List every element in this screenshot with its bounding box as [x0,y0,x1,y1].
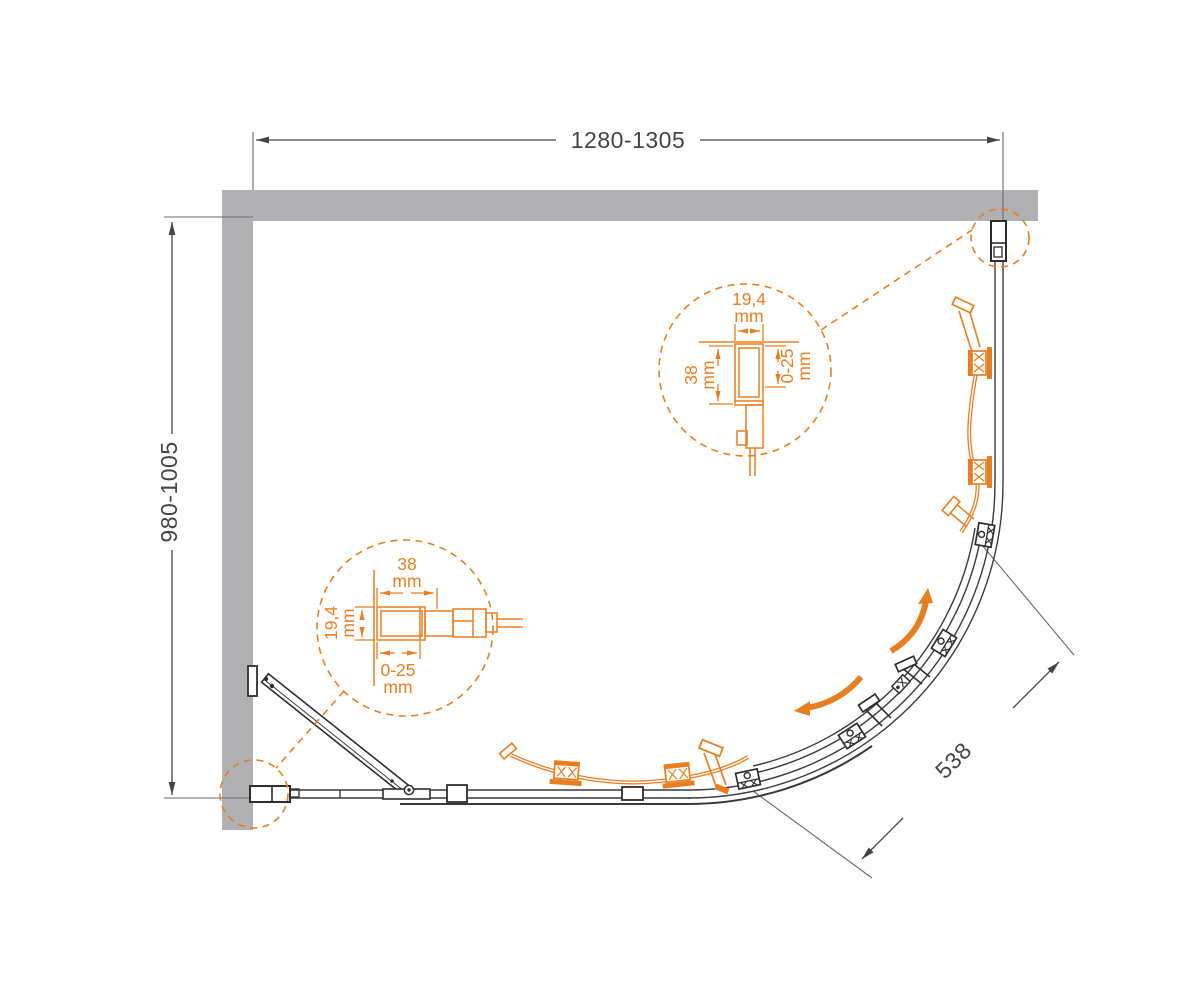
detail-top-adjust-dim: 0-25 mm [765,346,814,387]
dimension-width-label: 1280-1305 [571,127,686,153]
svg-text:mm: mm [383,677,412,697]
detail-bottom-adjust-dim: 0-25 mm [377,641,420,697]
slide-direction-arrows [794,588,933,716]
detail-bottom-depth-dim: 19,4 mm [321,606,375,640]
rail-connector [447,785,467,802]
curved-door-handle [858,656,930,726]
sliding-door-right [942,297,992,532]
curved-rail [400,483,1003,804]
svg-text:mm: mm [392,571,421,591]
rail-connector [622,787,643,800]
wall-left [222,190,253,830]
svg-text:mm: mm [794,351,814,380]
dimension-depth-label: 980-1005 [156,441,182,542]
arrow-down-icon [794,677,861,716]
wall-profile-top-right [991,221,1006,261]
arrow-up-icon [891,588,933,651]
fixed-panel-right [991,221,1006,483]
door-handle [952,297,980,352]
enclosure-frame [248,221,1006,804]
bottom-rail [250,785,690,802]
detail-callout-top: 19,4 mm 38 mm 0-25 mm [659,209,1029,476]
wall-top [222,190,1038,221]
wall-profile-bottom-left [250,786,299,802]
svg-text:mm: mm [734,306,763,326]
technical-drawing-canvas: 1280-1305 980-1005 538 [0,0,1181,1004]
dimension-radius-label: 538 [930,737,977,784]
detail-top-width-dim: 19,4 mm [732,289,766,341]
detail-bottom-width-dim: 38 mm [377,554,437,609]
svg-text:mm: mm [698,360,718,389]
svg-text:mm: mm [338,608,358,637]
detail-top-depth-dim: 38 mm [681,346,733,404]
